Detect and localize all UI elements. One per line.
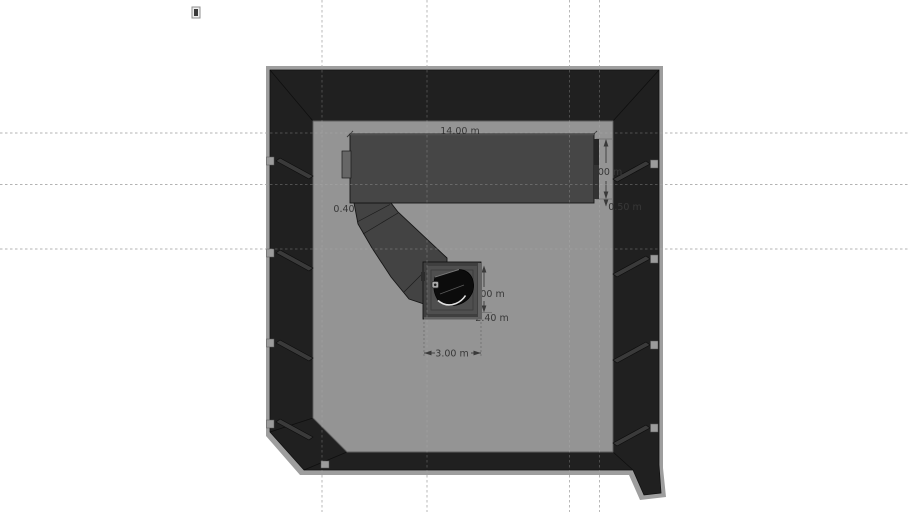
platform-side-face — [478, 263, 482, 319]
stage-left-tab — [342, 151, 351, 178]
small-component-icon[interactable] — [192, 7, 200, 18]
dim-stage-offset-label: 0.50 m — [608, 202, 641, 213]
platform-notch — [421, 272, 425, 281]
stage-platform[interactable] — [342, 134, 599, 203]
dim-platform-width-label: 3.00 m — [435, 349, 468, 360]
model-canvas[interactable]: 14.00 m 4.00 m 0.50 m 0.40 2.00 m 2.40 m… — [0, 0, 910, 512]
dim-ramp-width-label: 0.40 — [333, 204, 354, 215]
piano-stool[interactable] — [432, 282, 439, 289]
sketchup-viewport[interactable]: 14.00 m 4.00 m 0.50 m 0.40 2.00 m 2.40 m… — [0, 0, 910, 512]
